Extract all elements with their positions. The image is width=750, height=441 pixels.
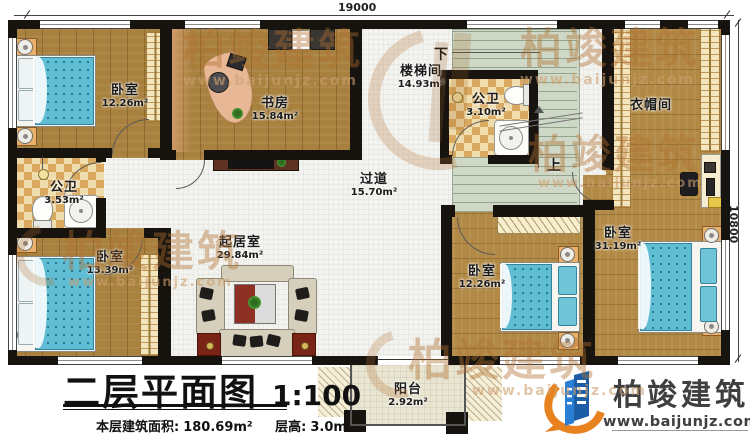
window bbox=[618, 356, 698, 365]
wall-bed1-south bbox=[148, 148, 172, 158]
side-table bbox=[197, 333, 221, 356]
wall-art bbox=[292, 30, 310, 50]
balcony-rail-bottom bbox=[350, 424, 466, 426]
stair-down-label: 下 bbox=[434, 44, 448, 64]
piano bbox=[310, 29, 335, 50]
decor-item bbox=[706, 178, 715, 196]
lamp-icon bbox=[560, 247, 575, 262]
floor-plan-canvas: 下 上 卧室 12.26m² 书房 15.84m² bbox=[0, 0, 750, 441]
wall-bath-left-east bbox=[96, 148, 106, 162]
lamp-icon bbox=[17, 128, 33, 144]
wall-bed2-north bbox=[8, 228, 104, 238]
room-label-cloakroom: 衣帽间 bbox=[622, 99, 680, 113]
pendant-light-icon bbox=[38, 169, 49, 180]
floor-area-value: 180.69m² bbox=[183, 420, 252, 435]
pillow bbox=[558, 266, 577, 295]
brand-url-underline bbox=[612, 430, 748, 431]
room-label-bath-stair: 公卫 3.10m² bbox=[462, 93, 510, 118]
stair-arrow-head bbox=[534, 106, 544, 113]
plan-title-text: 二层平面图 bbox=[63, 362, 258, 416]
dim-line-top bbox=[14, 15, 734, 16]
lamp-icon bbox=[560, 333, 575, 348]
wall-study-south-stub bbox=[172, 150, 176, 160]
sofa-right bbox=[288, 278, 317, 335]
wall-study-east bbox=[350, 20, 362, 160]
stair-up-label: 上 bbox=[547, 155, 561, 175]
cabinet bbox=[268, 29, 292, 50]
wall-bed3-west bbox=[441, 205, 452, 356]
room-label-bedroom-tl: 卧室 12.26m² bbox=[95, 84, 155, 109]
sofa-cushion bbox=[232, 334, 246, 347]
wall-bath-stair-south bbox=[440, 155, 452, 164]
sofa-cushion bbox=[249, 335, 263, 347]
sofa-cushion bbox=[199, 287, 214, 300]
sliding-door bbox=[377, 356, 449, 365]
window bbox=[500, 356, 580, 365]
wall-bed1-study bbox=[160, 20, 172, 160]
closet-rail bbox=[700, 28, 720, 152]
sofa-cushion bbox=[201, 309, 216, 322]
room-label-stairwell: 楼梯间 14.93m² bbox=[392, 65, 450, 90]
pendant-cord bbox=[42, 157, 43, 169]
plan-scale: 1:100 bbox=[272, 379, 361, 412]
room-label-corridor: 过道 15.70m² bbox=[346, 173, 402, 198]
floor-height-label: 层高: bbox=[275, 420, 306, 435]
window bbox=[721, 240, 730, 330]
plan-title: 二层平面图 1:100 bbox=[63, 362, 361, 416]
wall-suite-west bbox=[583, 200, 595, 365]
lamp-icon bbox=[704, 228, 719, 243]
room-label-study: 书房 15.84m² bbox=[243, 97, 307, 122]
luggage bbox=[680, 172, 698, 196]
plant-icon bbox=[248, 296, 261, 309]
wall-study-south bbox=[204, 150, 362, 160]
brand-name: 柏竣建筑 bbox=[612, 370, 750, 414]
wall-bed2-east bbox=[158, 228, 171, 356]
room-label-balcony: 阳台 2.92m² bbox=[382, 383, 434, 408]
plan-stats: 本层建筑面积:180.69m² 层高:3.0m bbox=[96, 416, 351, 435]
balcony-rail-right bbox=[464, 365, 466, 425]
wall-bath-stair-north bbox=[440, 70, 538, 79]
wall-bed3-north bbox=[493, 205, 595, 217]
dim-line-right bbox=[738, 20, 739, 362]
window bbox=[40, 20, 130, 29]
brand-block: 柏竣建筑 www.baijunjz.com bbox=[612, 370, 750, 430]
wardrobe bbox=[140, 254, 159, 356]
wall-bath-stair-south bbox=[488, 155, 538, 164]
room-label-bedroom-master: 卧室 31.19m² bbox=[590, 227, 646, 252]
lamp-icon bbox=[17, 39, 33, 55]
window bbox=[688, 20, 718, 29]
pillow bbox=[700, 248, 717, 284]
office-chair bbox=[208, 72, 229, 93]
sofa-cushion bbox=[294, 309, 309, 322]
plant-icon bbox=[232, 108, 243, 119]
pillow bbox=[558, 297, 577, 326]
window bbox=[467, 20, 557, 29]
floor-height-value: 3.0m bbox=[310, 420, 347, 435]
side-table bbox=[292, 333, 316, 356]
balcony-side-hatch-right bbox=[466, 367, 502, 421]
window bbox=[625, 20, 660, 29]
room-label-bedroom-br: 卧室 12.26m² bbox=[454, 265, 510, 290]
decor-item bbox=[704, 162, 716, 173]
sofa-left bbox=[196, 278, 225, 335]
window bbox=[8, 38, 17, 128]
dim-top-value: 19000 bbox=[338, 1, 376, 14]
window bbox=[8, 255, 17, 350]
room-label-bath-left: 公卫 3.53m² bbox=[38, 181, 90, 206]
closet-rail bbox=[612, 28, 631, 208]
brand-url: www.baijunjz.com bbox=[612, 414, 750, 430]
sofa-back bbox=[221, 265, 294, 282]
stair-direction-line bbox=[452, 52, 540, 53]
pillow bbox=[700, 286, 717, 322]
room-label-living: 起居室 29.84m² bbox=[210, 236, 270, 261]
window bbox=[721, 35, 730, 150]
brand-logo-icon bbox=[541, 368, 607, 436]
floor-area-label: 本层建筑面积: bbox=[96, 420, 179, 435]
room-label-bedroom-bl: 卧室 13.39m² bbox=[83, 251, 137, 276]
wall-cloakroom-west bbox=[602, 20, 614, 170]
dim-right-value: 10800 bbox=[727, 205, 740, 243]
wall-balcony-jamb-right bbox=[447, 356, 500, 365]
wall-bath-stair-east bbox=[529, 70, 538, 164]
window bbox=[185, 20, 260, 29]
